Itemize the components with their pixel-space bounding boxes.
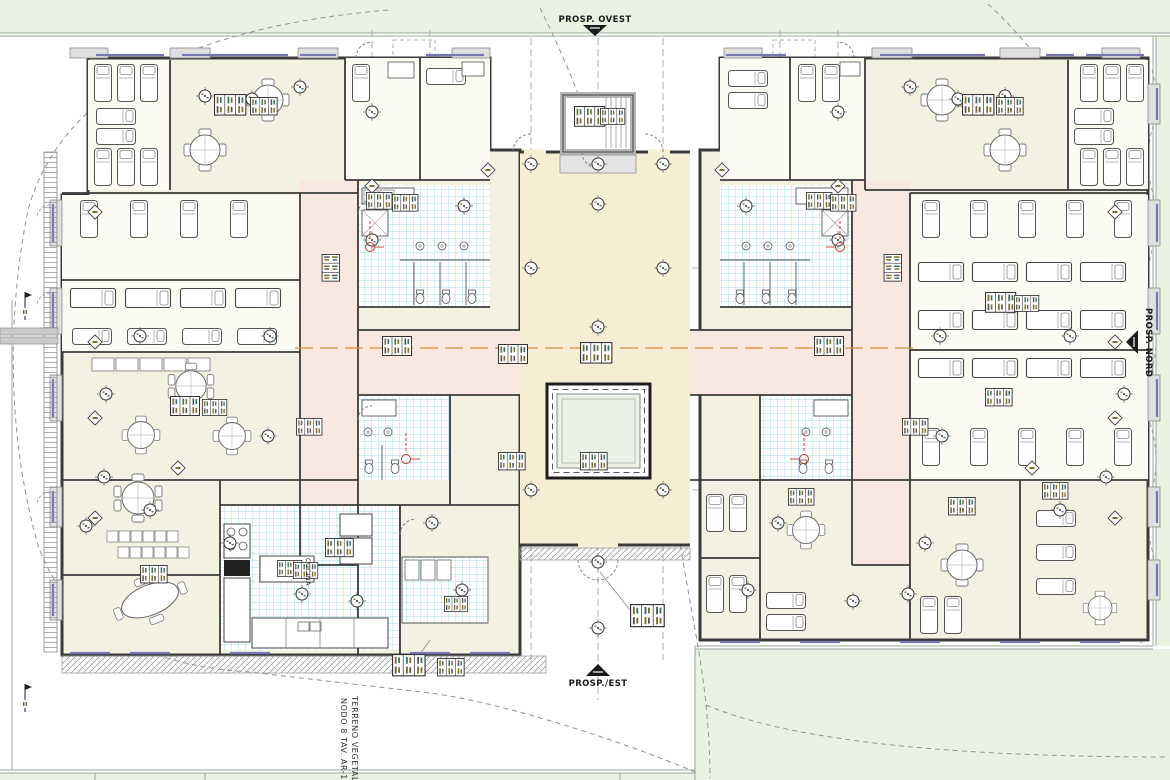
terrain-note-line1: TERRENO VEGETALE [350,695,359,780]
plan-drawing: PROSP. OVEST PROSP./EST PROSP. NORD TERR… [0,0,1170,780]
terrain-note-line2: NODO 8 TAV. AR-12 [339,698,348,780]
tag-leader [600,572,630,610]
left-wing [0,48,546,673]
prosp-nord-label: PROSP. NORD [1143,308,1153,377]
right-wing [690,48,1160,642]
green-area-bottom-right [695,649,1170,780]
prosp-est-label: PROSP./EST [569,679,628,689]
porch-south [520,548,690,560]
green-strip-right [1156,36,1170,646]
survey-marker [23,684,32,712]
floor-plan-sheet: PROSP. OVEST PROSP./EST PROSP. NORD TERR… [0,0,1170,780]
prosp-ovest-label: PROSP. OVEST [558,15,631,25]
terrace-south [62,656,546,673]
corridor [852,180,910,565]
east-arrow-icon [586,664,610,676]
terrain-note: TERRENO VEGETALE NODO 8 TAV. AR-12 [339,695,359,780]
survey-marker [23,292,32,320]
ramp-west [44,152,57,652]
kitchen-label: CUCINA [304,558,312,586]
